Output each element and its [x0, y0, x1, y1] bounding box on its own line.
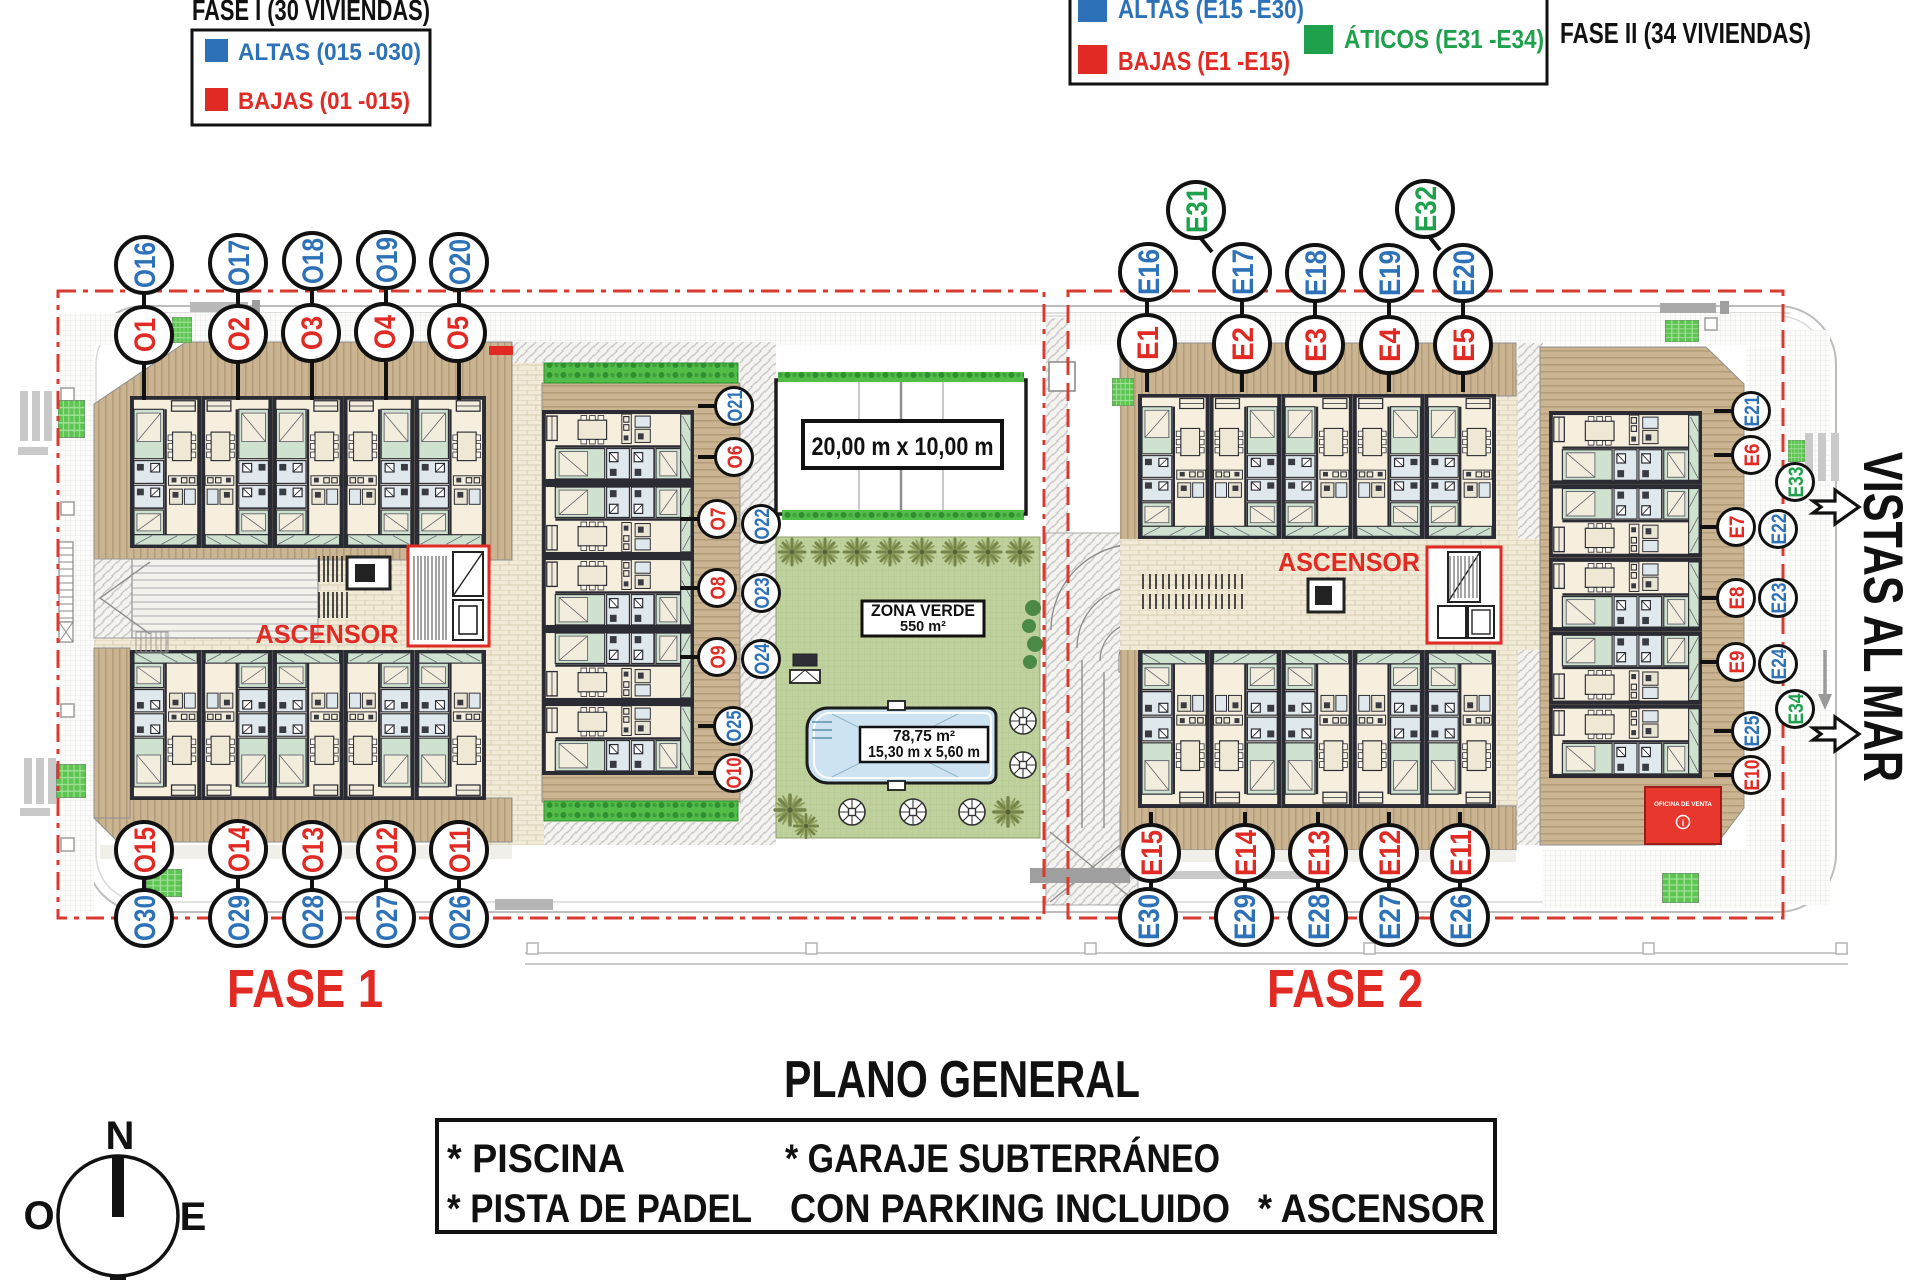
- svg-text:O25: O25: [723, 710, 746, 741]
- svg-text:20,00 m x 10,00 m: 20,00 m x 10,00 m: [812, 433, 994, 461]
- svg-text:E33: E33: [1785, 467, 1808, 498]
- svg-text:E11: E11: [1445, 830, 1478, 876]
- svg-text:* PISCINA: * PISCINA: [447, 1137, 625, 1181]
- svg-text:O9: O9: [707, 646, 730, 669]
- svg-text:550 m²: 550 m²: [900, 619, 946, 635]
- svg-text:E29: E29: [1229, 894, 1262, 940]
- svg-text:O26: O26: [444, 895, 477, 941]
- svg-text:78,75 m²: 78,75 m²: [893, 728, 955, 745]
- svg-text:E30: E30: [1133, 894, 1166, 940]
- svg-text:O17: O17: [223, 240, 256, 286]
- svg-text:O8: O8: [707, 576, 730, 599]
- svg-text:O11: O11: [444, 827, 477, 873]
- svg-text:E25: E25: [1741, 715, 1764, 746]
- svg-text:ALTAS (015 -030): ALTAS (015 -030): [238, 39, 421, 66]
- svg-text:E34: E34: [1785, 693, 1808, 724]
- svg-text:BAJAS (01 -015): BAJAS (01 -015): [238, 88, 410, 115]
- svg-text:PLANO GENERAL: PLANO GENERAL: [784, 1051, 1140, 1109]
- svg-text:O16: O16: [129, 242, 162, 288]
- svg-text:E26: E26: [1445, 894, 1478, 940]
- svg-text:E18: E18: [1300, 250, 1333, 296]
- svg-text:O10: O10: [723, 758, 746, 789]
- svg-text:FASE 1: FASE 1: [227, 959, 383, 1019]
- svg-text:N: N: [106, 1114, 135, 1158]
- svg-text:O13: O13: [297, 827, 330, 873]
- svg-text:E14: E14: [1230, 830, 1263, 876]
- svg-text:O19: O19: [371, 237, 404, 283]
- svg-text:E2: E2: [1227, 327, 1260, 361]
- svg-text:E3: E3: [1300, 328, 1333, 362]
- svg-text:* ASCENSOR: * ASCENSOR: [1258, 1187, 1485, 1231]
- svg-text:O1: O1: [129, 318, 162, 352]
- svg-text:E10: E10: [1741, 760, 1764, 791]
- svg-text:O30: O30: [129, 895, 162, 941]
- svg-text:E31: E31: [1181, 187, 1214, 233]
- svg-text:* GARAJE SUBTERRÁNEO: * GARAJE SUBTERRÁNEO: [785, 1136, 1220, 1181]
- svg-text:E1: E1: [1132, 326, 1165, 360]
- svg-text:ZONA VERDE: ZONA VERDE: [871, 602, 975, 620]
- svg-text:E28: E28: [1303, 894, 1336, 940]
- svg-text:O18: O18: [297, 238, 330, 284]
- svg-text:O21: O21: [724, 390, 747, 421]
- svg-text:BAJAS (E1 -E15): BAJAS (E1 -E15): [1118, 46, 1290, 76]
- svg-text:ASCENSOR: ASCENSOR: [256, 619, 399, 649]
- svg-text:E22: E22: [1768, 514, 1791, 545]
- svg-text:E15: E15: [1136, 830, 1169, 876]
- svg-text:O6: O6: [724, 446, 747, 469]
- svg-text:FASE 2: FASE 2: [1267, 959, 1423, 1019]
- svg-text:O22: O22: [751, 509, 774, 540]
- svg-text:O15: O15: [129, 827, 162, 873]
- svg-text:E5: E5: [1448, 328, 1481, 362]
- svg-text:O12: O12: [371, 827, 404, 873]
- svg-text:E21: E21: [1741, 395, 1764, 426]
- svg-text:E7: E7: [1726, 516, 1749, 539]
- svg-text:E32: E32: [1410, 186, 1443, 232]
- svg-text:15,30 m x 5,60 m: 15,30 m x 5,60 m: [868, 744, 980, 761]
- svg-text:O4: O4: [369, 315, 402, 349]
- svg-text:* PISTA DE PADEL: * PISTA DE PADEL: [447, 1187, 752, 1231]
- svg-text:E17: E17: [1227, 249, 1260, 295]
- svg-text:ALTAS (E15 -E30): ALTAS (E15 -E30): [1118, 0, 1304, 24]
- svg-text:VISTAS AL MAR: VISTAS AL MAR: [1852, 452, 1915, 782]
- svg-text:E19: E19: [1374, 250, 1407, 296]
- svg-text:FASE II (34 VIVIENDAS): FASE II (34 VIVIENDAS): [1560, 18, 1811, 50]
- svg-text:FASE I (30 VIVIENDAS): FASE I (30 VIVIENDAS): [192, 0, 430, 27]
- svg-text:CON PARKING INCLUIDO: CON PARKING INCLUIDO: [790, 1187, 1230, 1231]
- svg-text:O2: O2: [223, 317, 256, 351]
- svg-text:O14: O14: [223, 826, 256, 872]
- svg-text:E16: E16: [1133, 249, 1166, 295]
- svg-text:E: E: [180, 1195, 207, 1239]
- svg-text:O28: O28: [297, 895, 330, 941]
- svg-text:E9: E9: [1726, 651, 1749, 674]
- svg-text:E4: E4: [1374, 328, 1407, 362]
- svg-text:O3: O3: [296, 316, 329, 350]
- svg-text:O27: O27: [371, 895, 404, 941]
- svg-text:OFICINA DE VENTA: OFICINA DE VENTA: [1654, 801, 1712, 808]
- svg-text:O24: O24: [751, 643, 774, 674]
- svg-text:O5: O5: [442, 316, 475, 350]
- svg-text:O7: O7: [707, 508, 730, 531]
- svg-text:O29: O29: [223, 895, 256, 941]
- svg-text:E13: E13: [1303, 830, 1336, 876]
- svg-text:E27: E27: [1374, 894, 1407, 940]
- svg-text:E12: E12: [1374, 830, 1407, 876]
- svg-text:E20: E20: [1448, 250, 1481, 296]
- svg-text:E23: E23: [1768, 583, 1791, 614]
- svg-text:E24: E24: [1768, 648, 1791, 679]
- svg-text:O23: O23: [751, 578, 774, 609]
- svg-text:ASCENSOR: ASCENSOR: [1278, 547, 1420, 577]
- svg-text:i: i: [1682, 818, 1685, 828]
- svg-text:ÁTICOS (E31 -E34): ÁTICOS (E31 -E34): [1344, 24, 1544, 54]
- svg-text:E6: E6: [1741, 444, 1764, 467]
- svg-text:E8: E8: [1726, 586, 1749, 609]
- svg-text:O20: O20: [444, 239, 477, 285]
- svg-text:O: O: [23, 1194, 54, 1238]
